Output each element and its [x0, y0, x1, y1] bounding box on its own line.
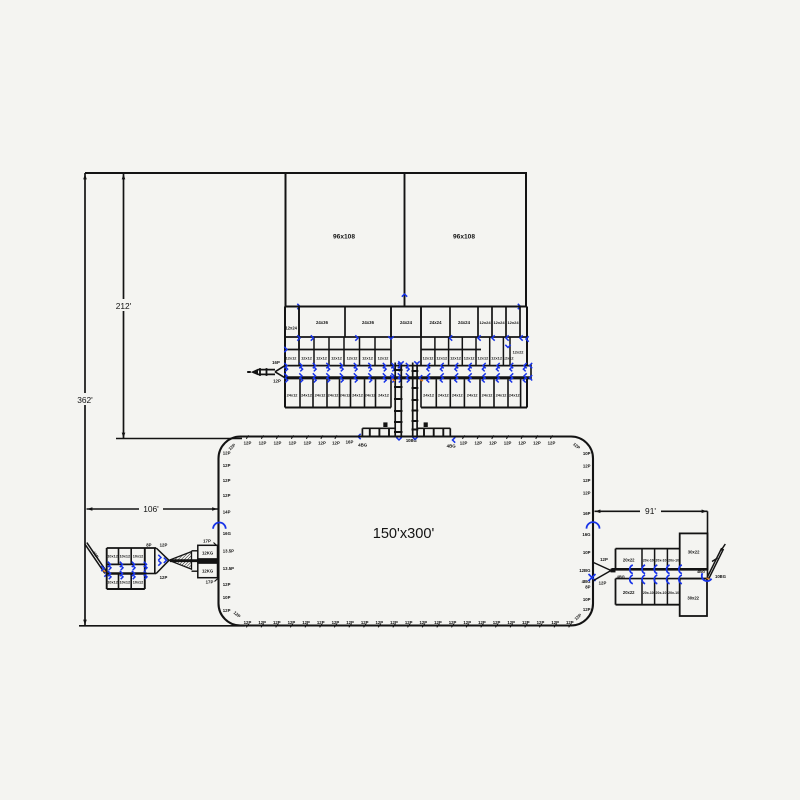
svg-text:12x12: 12x12 — [362, 356, 374, 361]
svg-text:4BG: 4BG — [617, 574, 625, 579]
svg-text:12P: 12P — [405, 620, 413, 625]
svg-text:150'x300': 150'x300' — [373, 526, 435, 542]
svg-text:12P: 12P — [390, 620, 398, 625]
svg-text:12P: 12P — [493, 620, 501, 625]
svg-text:24x12: 24x12 — [482, 393, 494, 398]
svg-text:24x12: 24x12 — [352, 393, 364, 398]
svg-text:12P: 12P — [244, 441, 252, 446]
svg-text:106': 106' — [143, 504, 159, 514]
svg-text:12P: 12P — [302, 620, 310, 625]
svg-text:12P: 12P — [507, 620, 515, 625]
svg-text:24x12: 24x12 — [378, 393, 390, 398]
svg-text:17P: 17P — [206, 580, 214, 585]
svg-text:12P: 12P — [583, 478, 591, 483]
svg-text:13.5P: 13.5P — [223, 566, 234, 571]
svg-text:12P: 12P — [478, 620, 486, 625]
svg-text:12P: 12P — [318, 441, 326, 446]
svg-text:30x22: 30x22 — [688, 550, 700, 555]
svg-text:362': 362' — [77, 395, 93, 405]
svg-text:12P: 12P — [463, 620, 471, 625]
svg-text:24x12: 24x12 — [496, 393, 508, 398]
svg-text:10P: 10P — [583, 451, 591, 456]
svg-text:14P: 14P — [223, 509, 231, 514]
svg-text:12x12: 12x12 — [477, 356, 489, 361]
svg-text:12P: 12P — [583, 463, 591, 468]
svg-text:12P: 12P — [533, 441, 541, 446]
svg-text:96x108: 96x108 — [333, 234, 355, 241]
svg-text:16G: 16G — [582, 532, 591, 537]
svg-text:16P: 16P — [583, 511, 591, 516]
svg-text:10x12: 10x12 — [107, 581, 118, 585]
svg-text:12x12: 12x12 — [491, 356, 503, 361]
svg-text:13.5P: 13.5P — [223, 549, 234, 554]
svg-text:12P: 12P — [600, 557, 608, 562]
svg-text:12P: 12P — [346, 620, 354, 625]
svg-text:4BG: 4BG — [358, 442, 368, 447]
svg-text:12P: 12P — [504, 441, 512, 446]
svg-text:12P: 12P — [223, 493, 231, 498]
svg-text:12BG: 12BG — [579, 568, 591, 573]
svg-text:16P: 16P — [346, 440, 354, 445]
svg-text:24x12: 24x12 — [509, 393, 521, 398]
svg-text:12x12: 12x12 — [423, 356, 435, 361]
svg-text:24x12: 24x12 — [438, 393, 450, 398]
svg-text:12P: 12P — [259, 441, 267, 446]
svg-text:24x12: 24x12 — [287, 393, 299, 398]
svg-text:12P: 12P — [376, 620, 384, 625]
svg-text:12P: 12P — [288, 620, 296, 625]
svg-text:24x36: 24x36 — [316, 320, 329, 325]
svg-text:4BG: 4BG — [697, 569, 705, 574]
svg-text:12P: 12P — [223, 463, 231, 468]
svg-text:10x12: 10x12 — [133, 555, 144, 559]
svg-text:12P: 12P — [223, 608, 231, 613]
svg-text:12x12: 12x12 — [464, 356, 476, 361]
svg-text:10P: 10P — [223, 595, 231, 600]
svg-text:12x24: 12x24 — [493, 320, 505, 325]
svg-text:20x-10: 20x-10 — [668, 558, 679, 562]
svg-text:24x24: 24x24 — [430, 320, 443, 325]
svg-text:12P: 12P — [419, 620, 427, 625]
svg-text:12x12: 12x12 — [503, 356, 515, 361]
svg-text:12P: 12P — [332, 620, 340, 625]
svg-text:10P: 10P — [583, 550, 591, 555]
svg-text:20x-10: 20x-10 — [643, 558, 654, 562]
svg-text:24x36: 24x36 — [362, 320, 375, 325]
svg-text:24x12: 24x12 — [452, 393, 464, 398]
svg-text:8P: 8P — [585, 585, 590, 590]
svg-text:10BG: 10BG — [715, 574, 726, 579]
svg-text:20x-10: 20x-10 — [656, 558, 667, 562]
svg-text:24x12: 24x12 — [467, 393, 479, 398]
svg-text:12P: 12P — [160, 542, 168, 547]
svg-text:12P: 12P — [274, 441, 282, 446]
svg-text:12P: 12P — [273, 620, 281, 625]
svg-text:12x12: 12x12 — [316, 356, 328, 361]
svg-text:212': 212' — [116, 301, 132, 311]
svg-text:12x24: 12x24 — [479, 320, 491, 325]
svg-text:12x22: 12x22 — [513, 350, 525, 355]
svg-text:10x12: 10x12 — [120, 555, 131, 559]
svg-text:12x24: 12x24 — [286, 326, 298, 331]
svg-text:12P: 12P — [537, 620, 545, 625]
svg-text:10x12: 10x12 — [120, 581, 131, 585]
svg-text:12P: 12P — [599, 580, 607, 585]
svg-text:12x12: 12x12 — [436, 356, 448, 361]
svg-text:16P: 16P — [272, 360, 280, 365]
svg-text:91': 91' — [645, 506, 656, 516]
svg-text:12P: 12P — [223, 582, 231, 587]
svg-text:12P: 12P — [244, 620, 252, 625]
svg-text:96x108: 96x108 — [453, 234, 475, 241]
svg-text:10x12: 10x12 — [107, 555, 118, 559]
svg-text:24x24: 24x24 — [458, 320, 471, 325]
svg-text:12KG: 12KG — [202, 550, 214, 555]
svg-text:16G: 16G — [223, 531, 232, 536]
svg-text:12x24: 12x24 — [507, 320, 519, 325]
svg-text:24x24: 24x24 — [400, 320, 413, 325]
svg-text:12P: 12P — [518, 441, 526, 446]
svg-text:10P: 10P — [583, 597, 591, 602]
svg-text:10x12: 10x12 — [133, 581, 144, 585]
svg-text:12x12: 12x12 — [347, 356, 359, 361]
svg-text:4BG: 4BG — [447, 443, 457, 448]
svg-text:12P: 12P — [258, 620, 266, 625]
svg-text:12x12: 12x12 — [378, 356, 390, 361]
svg-text:20x22: 20x22 — [623, 557, 635, 562]
svg-text:24x12: 24x12 — [423, 393, 435, 398]
svg-text:12x12: 12x12 — [331, 356, 343, 361]
svg-text:20x-10: 20x-10 — [668, 591, 679, 595]
svg-text:20x22: 20x22 — [623, 590, 635, 595]
svg-text:12x12: 12x12 — [450, 356, 462, 361]
svg-text:8P: 8P — [146, 542, 151, 547]
svg-text:12P: 12P — [522, 620, 530, 625]
svg-text:12P: 12P — [474, 441, 482, 446]
svg-text:12P: 12P — [289, 441, 297, 446]
svg-text:12P: 12P — [304, 441, 312, 446]
svg-text:12P: 12P — [223, 478, 231, 483]
svg-text:12P: 12P — [449, 620, 457, 625]
svg-text:12P: 12P — [273, 379, 281, 384]
svg-text:12P: 12P — [317, 620, 325, 625]
svg-text:12P: 12P — [223, 451, 231, 456]
svg-text:20x-10: 20x-10 — [643, 591, 654, 595]
svg-text:17P: 17P — [203, 539, 211, 544]
svg-text:20x-10: 20x-10 — [656, 591, 667, 595]
svg-text:12x12: 12x12 — [286, 356, 298, 361]
svg-text:24x12: 24x12 — [340, 393, 352, 398]
svg-text:12P: 12P — [460, 441, 468, 446]
svg-text:12P: 12P — [434, 620, 442, 625]
svg-text:12P: 12P — [566, 620, 574, 625]
svg-text:12P: 12P — [489, 441, 497, 446]
svg-text:12P: 12P — [332, 441, 340, 446]
svg-text:12P: 12P — [160, 575, 168, 580]
svg-text:12KG: 12KG — [202, 569, 214, 574]
svg-text:24x12: 24x12 — [365, 393, 377, 398]
svg-text:24x12: 24x12 — [328, 393, 340, 398]
svg-text:24x12: 24x12 — [315, 393, 327, 398]
svg-text:30x22: 30x22 — [687, 596, 699, 601]
svg-text:24x12: 24x12 — [301, 393, 313, 398]
svg-text:12P: 12P — [583, 490, 591, 495]
svg-text:12P: 12P — [548, 441, 556, 446]
svg-text:12P: 12P — [551, 620, 559, 625]
svg-text:12P: 12P — [583, 607, 591, 612]
svg-text:12P: 12P — [361, 620, 369, 625]
svg-text:12x12: 12x12 — [301, 356, 313, 361]
